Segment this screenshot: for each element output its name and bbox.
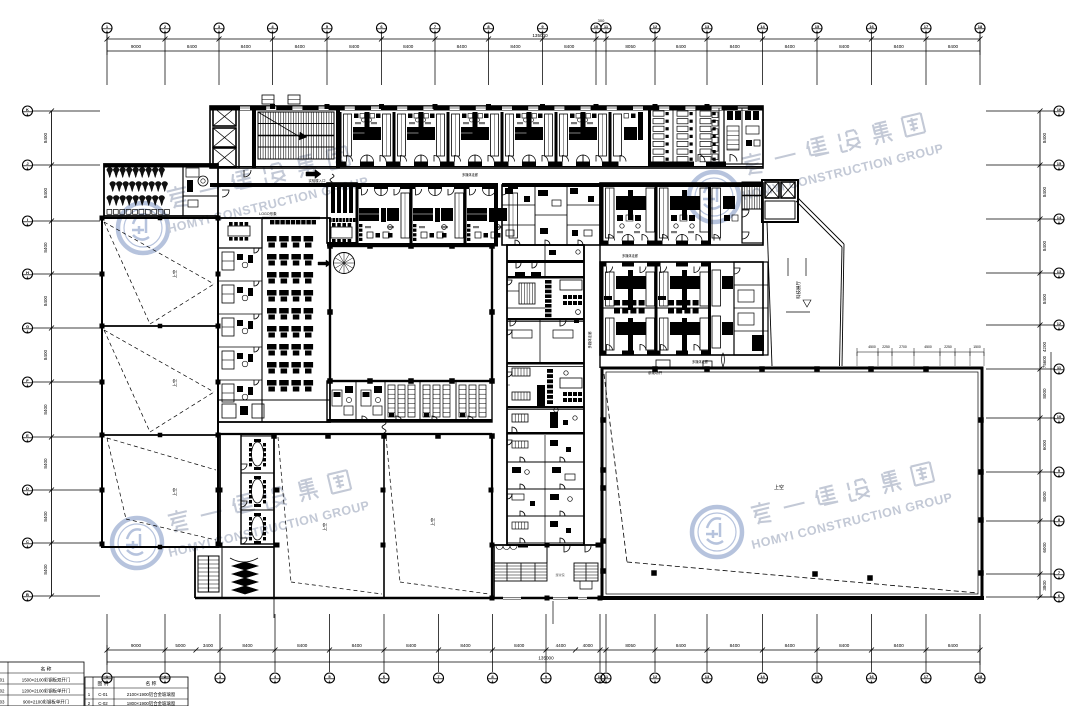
svg-text:8400: 8400 bbox=[1042, 293, 1047, 304]
svg-text:10: 10 bbox=[594, 24, 599, 29]
svg-text:8400: 8400 bbox=[948, 643, 959, 648]
svg-text:上空: 上空 bbox=[171, 270, 177, 278]
svg-text:8400: 8400 bbox=[43, 564, 48, 575]
svg-text:8000: 8000 bbox=[1042, 388, 1047, 399]
svg-text:18: 18 bbox=[978, 24, 983, 29]
svg-text:8400: 8400 bbox=[730, 44, 741, 49]
svg-text:8400: 8400 bbox=[460, 643, 471, 648]
svg-text:2100×1900铝合金玻璃窗: 2100×1900铝合金玻璃窗 bbox=[127, 691, 176, 698]
svg-text:3800: 3800 bbox=[1042, 580, 1047, 591]
svg-text:900×2100彩钢板单开门: 900×2100彩钢板单开门 bbox=[23, 699, 69, 706]
svg-text:9000: 9000 bbox=[131, 643, 142, 648]
svg-text:8400: 8400 bbox=[403, 44, 414, 49]
svg-text:03: 03 bbox=[0, 700, 5, 705]
svg-text:14: 14 bbox=[1057, 215, 1062, 220]
svg-text:8400: 8400 bbox=[43, 511, 48, 522]
svg-text:LOGO形象: LOGO形象 bbox=[259, 211, 277, 216]
svg-text:8400: 8400 bbox=[676, 44, 687, 49]
svg-text:15: 15 bbox=[815, 674, 820, 679]
svg-text:8400: 8400 bbox=[242, 643, 253, 648]
svg-text:18: 18 bbox=[978, 674, 983, 679]
svg-text:上空: 上空 bbox=[171, 379, 177, 387]
svg-text:4200: 4200 bbox=[1042, 341, 1047, 352]
svg-text:多媒体走廊: 多媒体走廊 bbox=[692, 359, 709, 364]
svg-text:1500: 1500 bbox=[973, 345, 981, 349]
svg-text:8400: 8400 bbox=[349, 44, 360, 49]
svg-text:02: 02 bbox=[0, 689, 5, 694]
svg-text:2700: 2700 bbox=[899, 345, 907, 349]
svg-text:8400: 8400 bbox=[43, 242, 48, 253]
svg-text:科技展厅: 科技展厅 bbox=[795, 281, 802, 299]
svg-text:15: 15 bbox=[815, 24, 820, 29]
svg-text:13: 13 bbox=[705, 24, 710, 29]
svg-text:名 称: 名 称 bbox=[41, 666, 52, 673]
svg-text:8400: 8400 bbox=[43, 404, 48, 415]
svg-text:17: 17 bbox=[924, 24, 929, 29]
svg-text:13: 13 bbox=[1057, 269, 1062, 274]
svg-text:8400: 8400 bbox=[785, 643, 796, 648]
svg-text:8400: 8400 bbox=[564, 44, 575, 49]
svg-text:8400: 8400 bbox=[352, 643, 363, 648]
svg-text:游泳馆: 游泳馆 bbox=[555, 572, 564, 577]
svg-text:8400: 8400 bbox=[676, 643, 687, 648]
svg-text:8400: 8400 bbox=[43, 458, 48, 469]
svg-text:图 例: 图 例 bbox=[98, 680, 109, 687]
svg-text:8400: 8400 bbox=[1042, 240, 1047, 251]
svg-text:8400: 8400 bbox=[730, 643, 741, 648]
svg-text:8000: 8000 bbox=[1042, 491, 1047, 502]
svg-text:8400: 8400 bbox=[457, 44, 468, 49]
svg-text:5000: 5000 bbox=[175, 643, 186, 648]
svg-text:8050: 8050 bbox=[625, 643, 636, 648]
svg-text:01: 01 bbox=[0, 678, 5, 683]
svg-text:8400: 8400 bbox=[406, 643, 417, 648]
svg-text:16: 16 bbox=[869, 674, 874, 679]
svg-text:上空: 上空 bbox=[171, 488, 177, 496]
svg-text:13: 13 bbox=[705, 674, 710, 679]
svg-text:8400: 8400 bbox=[1042, 186, 1047, 197]
svg-text:8400: 8400 bbox=[894, 44, 905, 49]
svg-text:B: B bbox=[26, 592, 29, 597]
svg-text:17: 17 bbox=[924, 674, 929, 679]
svg-text:10: 10 bbox=[1057, 414, 1062, 419]
svg-text:8400: 8400 bbox=[297, 643, 308, 648]
svg-text:4000: 4000 bbox=[583, 643, 594, 648]
svg-text:J: J bbox=[26, 161, 28, 166]
svg-text:上空: 上空 bbox=[774, 484, 784, 491]
svg-text:16: 16 bbox=[869, 24, 874, 29]
svg-text:8400: 8400 bbox=[43, 187, 48, 198]
svg-text:8400: 8400 bbox=[510, 44, 521, 49]
svg-text:6000: 6000 bbox=[1042, 439, 1047, 450]
svg-text:多媒体走廊: 多媒体走廊 bbox=[622, 253, 639, 258]
svg-text:2250: 2250 bbox=[882, 345, 890, 349]
svg-text:8400: 8400 bbox=[43, 295, 48, 306]
svg-text:15: 15 bbox=[1057, 161, 1062, 166]
svg-text:8400: 8400 bbox=[839, 643, 850, 648]
svg-text:8400: 8400 bbox=[894, 643, 905, 648]
svg-text:多媒体走廊: 多媒体走廊 bbox=[462, 172, 479, 177]
svg-text:300: 300 bbox=[598, 18, 605, 23]
svg-text:8400: 8400 bbox=[241, 44, 252, 49]
svg-text:多媒体走廊: 多媒体走廊 bbox=[587, 331, 592, 349]
svg-text:8400: 8400 bbox=[43, 349, 48, 360]
svg-text:8400: 8400 bbox=[295, 44, 306, 49]
svg-text:名 称: 名 称 bbox=[146, 680, 157, 687]
svg-text:8400: 8400 bbox=[948, 44, 959, 49]
svg-text:8400: 8400 bbox=[1042, 132, 1047, 143]
svg-text:8400: 8400 bbox=[785, 44, 796, 49]
svg-text:75600: 75600 bbox=[1042, 355, 1047, 368]
svg-text:E: E bbox=[26, 433, 29, 438]
svg-text:8050: 8050 bbox=[625, 44, 636, 49]
svg-text:4500: 4500 bbox=[868, 345, 876, 349]
svg-text:I: I bbox=[27, 217, 28, 222]
svg-text:4400: 4400 bbox=[556, 643, 567, 648]
svg-text:12: 12 bbox=[1057, 321, 1062, 326]
svg-text:1800×1900铝合金玻璃窗: 1800×1900铝合金玻璃窗 bbox=[127, 700, 176, 706]
svg-text:4500: 4500 bbox=[924, 345, 932, 349]
svg-text:上空: 上空 bbox=[429, 518, 435, 526]
svg-text:C-02: C-02 bbox=[98, 701, 108, 706]
svg-text:1200×2100彩钢板单开门: 1200×2100彩钢板单开门 bbox=[22, 688, 70, 695]
svg-text:8400: 8400 bbox=[43, 132, 48, 143]
svg-text:8400: 8400 bbox=[514, 643, 525, 648]
svg-text:12: 12 bbox=[653, 674, 658, 679]
svg-text:C-01: C-01 bbox=[98, 692, 108, 697]
svg-text:D: D bbox=[26, 486, 29, 491]
svg-text:实验楼入口: 实验楼入口 bbox=[309, 178, 326, 183]
svg-text:参观场开: 参观场开 bbox=[648, 370, 663, 375]
svg-text:H: H bbox=[26, 270, 29, 275]
svg-text:12: 12 bbox=[653, 24, 658, 29]
svg-text:1500×2100彩钢板双开门: 1500×2100彩钢板双开门 bbox=[22, 677, 70, 684]
svg-text:3400: 3400 bbox=[203, 643, 214, 648]
svg-text:6000: 6000 bbox=[1042, 542, 1047, 553]
svg-text:C: C bbox=[26, 539, 29, 544]
svg-text:9000: 9000 bbox=[131, 44, 142, 49]
svg-text:14: 14 bbox=[760, 674, 765, 679]
svg-text:G: G bbox=[26, 324, 29, 329]
svg-text:2250: 2250 bbox=[944, 345, 952, 349]
svg-text:14: 14 bbox=[760, 24, 765, 29]
svg-text:16: 16 bbox=[1057, 107, 1062, 112]
svg-text:K: K bbox=[26, 107, 29, 112]
svg-text:上空: 上空 bbox=[321, 523, 327, 531]
svg-text:8400: 8400 bbox=[187, 44, 198, 49]
svg-text:135000: 135000 bbox=[532, 33, 548, 38]
svg-text:8400: 8400 bbox=[839, 44, 850, 49]
